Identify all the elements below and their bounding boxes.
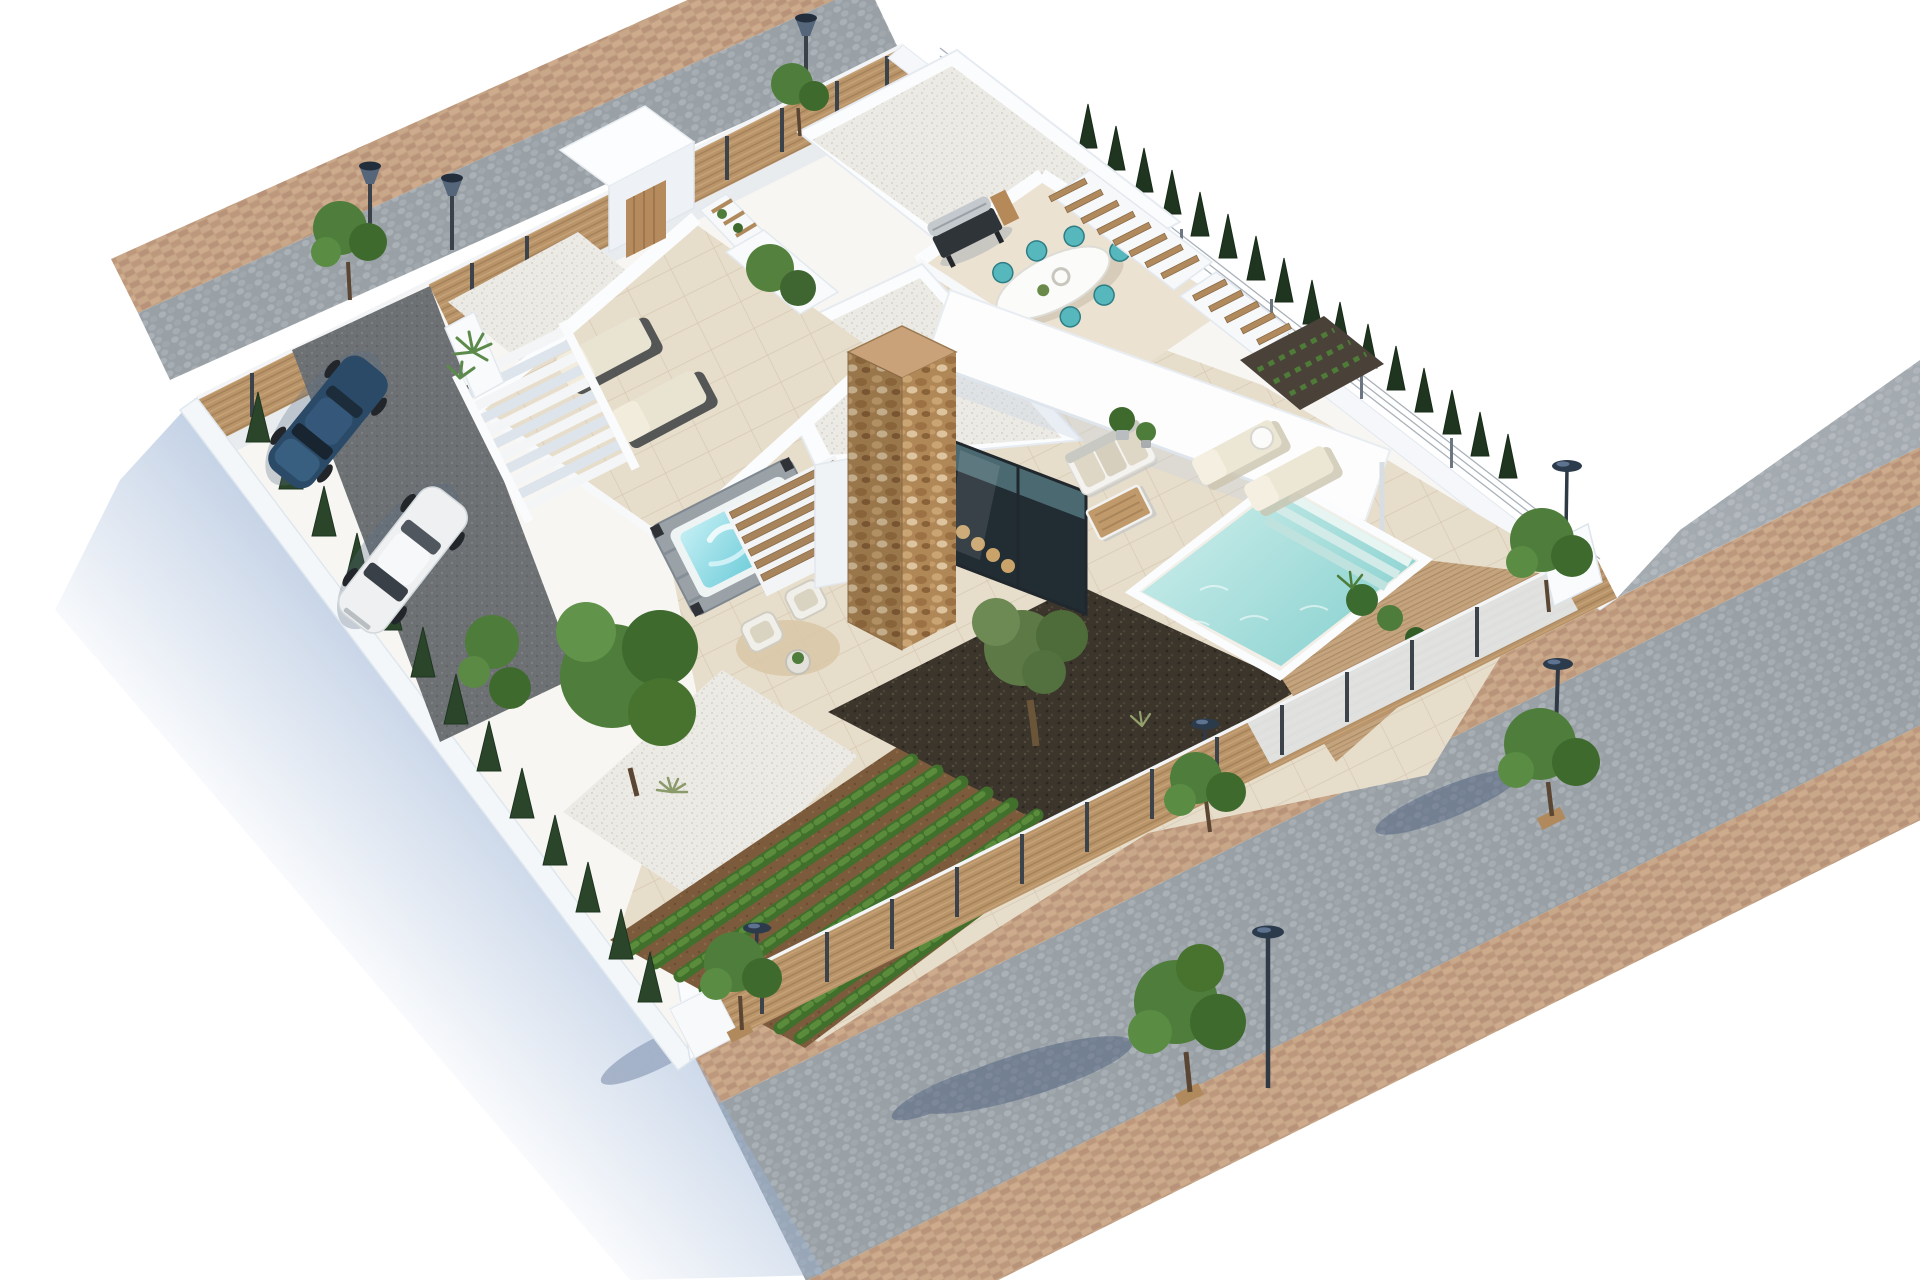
stone-pillar: [848, 326, 956, 650]
pool-side-table: [1251, 427, 1273, 449]
render-stage: [0, 0, 1920, 1280]
